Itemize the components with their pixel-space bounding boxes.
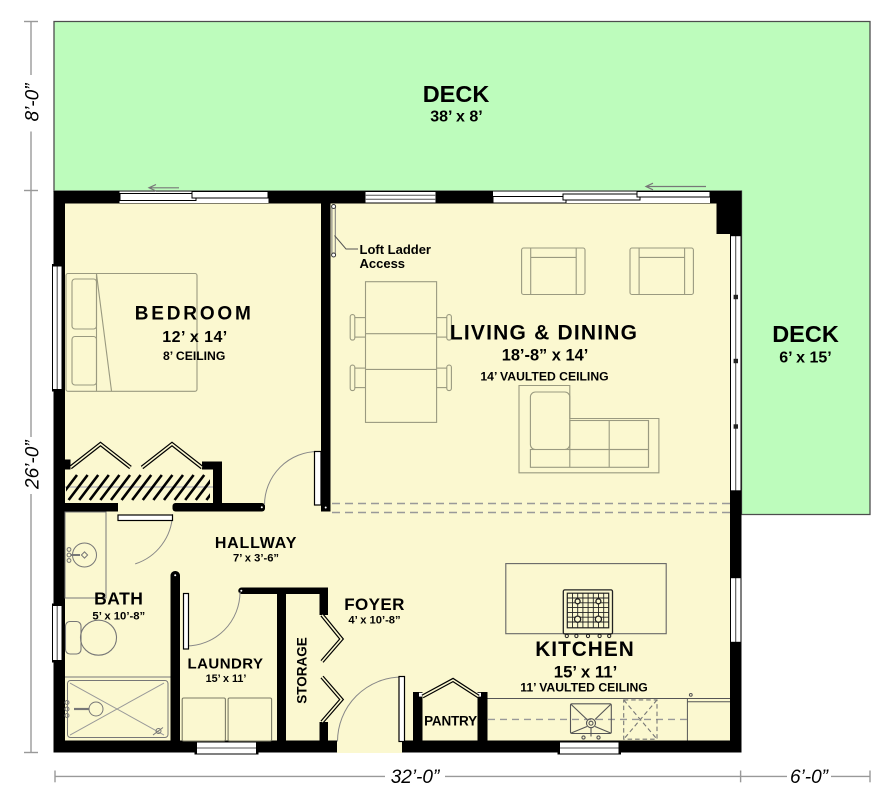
svg-text:LAUNDRY: LAUNDRY (188, 656, 264, 673)
svg-text:11’ VAULTED CEILING: 11’ VAULTED CEILING (520, 681, 648, 695)
svg-text:Loft Ladder: Loft Ladder (360, 242, 432, 257)
svg-text:18’-8” x 14’: 18’-8” x 14’ (502, 347, 589, 365)
svg-text:15’ x 11’: 15’ x 11’ (554, 663, 617, 682)
svg-text:PANTRY: PANTRY (424, 714, 477, 729)
svg-text:7’ x 3’-6”: 7’ x 3’-6” (233, 552, 279, 564)
svg-text:BATH: BATH (94, 589, 143, 609)
svg-text:14’ VAULTED CEILING: 14’ VAULTED CEILING (480, 370, 608, 384)
svg-text:5’ x 10’-8”: 5’ x 10’-8” (92, 611, 145, 623)
svg-text:38’ x 8’: 38’ x 8’ (430, 109, 483, 126)
svg-text:8’ CEILING: 8’ CEILING (163, 349, 225, 363)
svg-text:4’ x 10’-8”: 4’ x 10’-8” (348, 615, 400, 627)
svg-text:15’ x 11’: 15’ x 11’ (206, 673, 247, 685)
svg-text:8’-0”: 8’-0” (23, 82, 44, 122)
svg-text:LIVING & DINING: LIVING & DINING (450, 322, 638, 345)
svg-text:BEDROOM: BEDROOM (135, 304, 254, 325)
svg-text:6’-0”: 6’-0” (790, 767, 830, 788)
svg-text:12’ x 14’: 12’ x 14’ (162, 329, 227, 346)
svg-text:STORAGE: STORAGE (295, 637, 310, 704)
svg-text:KITCHEN: KITCHEN (535, 638, 634, 661)
svg-text:6’ x 15’: 6’ x 15’ (779, 350, 832, 367)
svg-text:Access: Access (360, 256, 406, 271)
svg-text:26’-0”: 26’-0” (23, 439, 44, 490)
svg-text:32’-0”: 32’-0” (391, 767, 441, 788)
svg-text:DECK: DECK (772, 321, 839, 347)
svg-text:FOYER: FOYER (344, 595, 405, 614)
svg-text:HALLWAY: HALLWAY (215, 535, 297, 552)
svg-text:DECK: DECK (423, 81, 490, 107)
